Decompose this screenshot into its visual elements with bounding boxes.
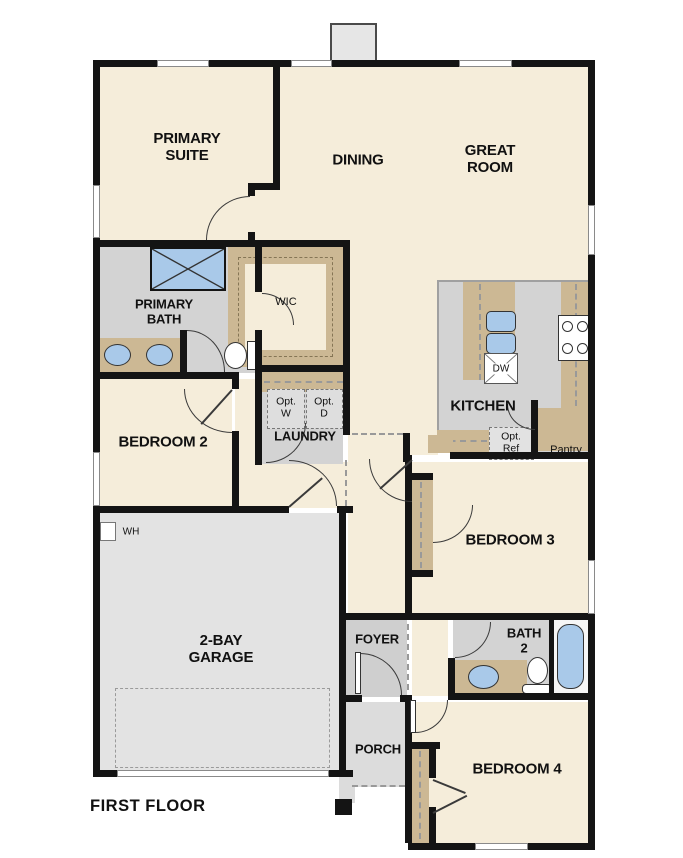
label-bedroom-3: BEDROOM 3 [465, 533, 554, 550]
hall-opening-dash [352, 433, 403, 435]
burner-icon [577, 343, 588, 354]
hall-linen-shelf [428, 435, 453, 453]
label-kitchen: KITCHEN [450, 399, 515, 416]
wall [93, 372, 235, 379]
wall [339, 695, 362, 702]
wall [345, 613, 588, 620]
wall [339, 506, 346, 770]
floor-plan: DW [0, 0, 683, 858]
wall [232, 372, 239, 389]
wall [255, 365, 350, 372]
label-opt-washer: Opt. W [276, 396, 296, 420]
label-pantry: Pantry [550, 444, 582, 456]
toilet-primary [224, 342, 247, 369]
water-heater [100, 522, 116, 541]
label-bedroom-4: BEDROOM 4 [472, 762, 561, 779]
floor-hall-bath2 [412, 620, 448, 696]
bath2-sink [468, 665, 499, 689]
burner-icon [562, 343, 573, 354]
burner-icon [577, 321, 588, 332]
floor-dining-lower [350, 280, 438, 455]
bedroom3-closet [412, 480, 433, 570]
wall [405, 570, 433, 577]
island-dash [479, 284, 481, 380]
label-garage: 2-BAY GARAGE [189, 633, 254, 667]
wall [248, 188, 255, 196]
wall [549, 620, 554, 693]
bathtub [557, 624, 584, 689]
toilet-bath2 [527, 657, 548, 684]
chimney [330, 23, 377, 64]
porch-post [335, 799, 352, 815]
bedroom4-closet-dash [419, 751, 421, 839]
label-bedroom-2: BEDROOM 2 [118, 435, 207, 452]
window [157, 60, 209, 67]
bath-sink-right [146, 344, 173, 366]
window [588, 560, 595, 614]
label-porch: PORCH [355, 743, 401, 758]
garage-parking-zone [115, 688, 330, 768]
bath-sink-left [104, 344, 131, 366]
wall [448, 693, 588, 700]
bedroom3-closet-dash [420, 482, 422, 568]
wall [93, 240, 350, 247]
label-opt-dryer: Opt. D [314, 396, 334, 420]
label-laundry: LAUNDRY [274, 430, 336, 445]
wall [343, 240, 350, 435]
wall [255, 330, 262, 465]
wall [93, 506, 289, 513]
wall [180, 330, 187, 374]
window [588, 205, 595, 255]
garage-door [117, 770, 329, 777]
door-leaf-foyer-entry [355, 652, 361, 694]
porch-edge-dash [352, 785, 405, 787]
label-wic: WIC [275, 296, 296, 308]
range-stove [558, 315, 592, 361]
wall [273, 60, 280, 190]
label-great-room: GREAT ROOM [465, 143, 515, 177]
window [459, 60, 512, 67]
label-bath-2: BATH 2 [507, 626, 541, 655]
window [93, 452, 100, 506]
door-leaf-bedroom-4 [410, 700, 416, 733]
hall-opening-dash-2 [345, 460, 347, 506]
dishwasher-label: DW [492, 363, 511, 374]
page-title: FIRST FLOOR [90, 797, 206, 815]
foyer-opening-dash [407, 624, 409, 690]
kitchen-sink-bottom [486, 333, 516, 354]
kitchen-sink-top [486, 311, 516, 332]
burner-icon [562, 321, 573, 332]
label-primary-suite: PRIMARY SUITE [153, 131, 220, 165]
wall [93, 60, 100, 777]
window [93, 185, 100, 238]
wall [232, 431, 239, 506]
shower [150, 247, 226, 291]
window [475, 843, 528, 850]
window [291, 60, 332, 67]
laundry-counter-dash [264, 381, 343, 383]
label-foyer: FOYER [355, 633, 399, 648]
label-dining: DINING [332, 153, 383, 170]
label-water-heater: WH [123, 526, 140, 537]
label-opt-refrigerator: Opt. Ref [501, 431, 521, 455]
wall [429, 742, 436, 778]
dishwasher: DW [484, 353, 518, 384]
wall [255, 240, 262, 292]
label-primary-bath: PRIMARY BATH [135, 297, 193, 326]
wall [588, 60, 595, 850]
